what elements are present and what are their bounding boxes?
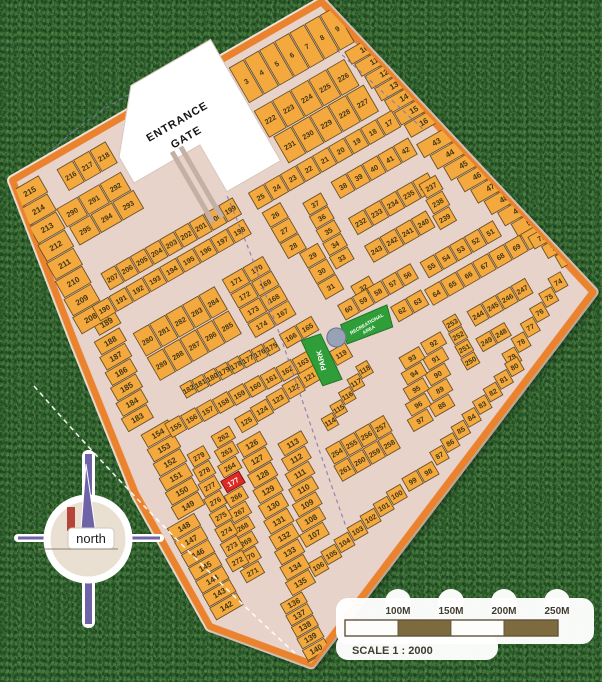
scale-segment-3 [451, 620, 504, 636]
scale-segment-2 [398, 620, 451, 636]
scale-segment-1 [345, 620, 398, 636]
compass-red-marker [67, 507, 75, 531]
scale-tick-200m: 200M [491, 606, 516, 617]
scale-tick-100m: 100M [385, 606, 410, 617]
scale-bar: 100M 150M 200M 250M SCALE 1 : 2000 [336, 589, 594, 660]
map-canvas: 3456789101112131415162222232242252262312… [0, 0, 602, 682]
scale-tick-250m: 250M [544, 606, 569, 617]
north-label: north [76, 531, 106, 546]
scale-tick-150m: 150M [438, 606, 463, 617]
subdivision-map-poster: 3456789101112131415162222232242252262312… [0, 0, 602, 682]
scale-caption: SCALE 1 : 2000 [352, 645, 433, 657]
scale-segment-4 [504, 620, 558, 636]
